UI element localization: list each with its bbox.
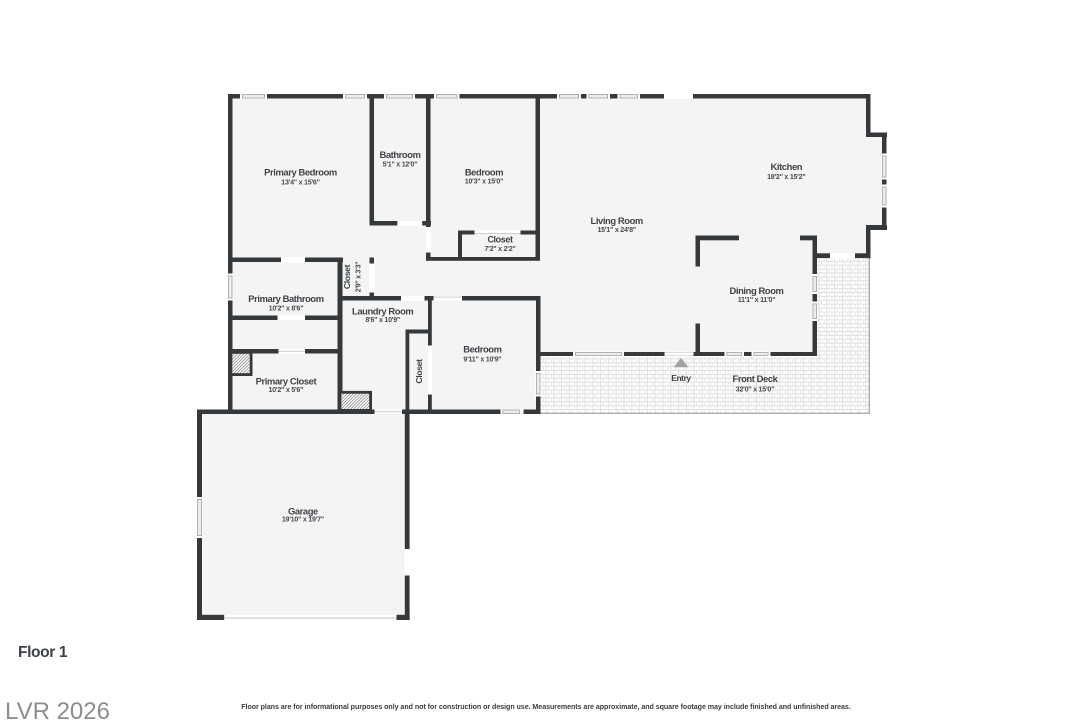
svg-text:Primary Bathroom: Primary Bathroom	[248, 293, 323, 304]
svg-text:18'2" x 15'2": 18'2" x 15'2"	[767, 173, 805, 181]
svg-text:2'9" x 3'3": 2'9" x 3'3"	[355, 262, 362, 293]
svg-text:8'6" x 10'9": 8'6" x 10'9"	[365, 316, 400, 324]
svg-text:15'1" x 24'8": 15'1" x 24'8"	[597, 226, 635, 234]
svg-text:Primary Closet: Primary Closet	[256, 375, 317, 386]
svg-text:Kitchen: Kitchen	[771, 161, 803, 172]
svg-text:Closet: Closet	[487, 235, 513, 245]
svg-text:Primary Bedroom: Primary Bedroom	[264, 167, 337, 178]
svg-text:Front Deck: Front Deck	[733, 373, 779, 384]
svg-text:Bedroom: Bedroom	[465, 166, 503, 177]
svg-text:Closet: Closet	[342, 264, 352, 289]
svg-text:Living Room: Living Room	[591, 215, 643, 226]
svg-text:Laundry Room: Laundry Room	[352, 305, 413, 316]
svg-text:10'2" x 8'6": 10'2" x 8'6"	[269, 304, 304, 312]
svg-text:32'0" x 15'0": 32'0" x 15'0"	[736, 385, 774, 393]
svg-text:Bedroom: Bedroom	[463, 343, 501, 354]
svg-text:7'2" x 2'2": 7'2" x 2'2"	[484, 245, 515, 253]
svg-text:Dining Room: Dining Room	[730, 285, 784, 296]
svg-text:Floor 1: Floor 1	[18, 644, 68, 661]
svg-text:Closet: Closet	[414, 359, 424, 384]
svg-text:10'2" x 5'6": 10'2" x 5'6"	[269, 386, 304, 394]
svg-text:Entry: Entry	[671, 373, 691, 383]
svg-text:LVR 2026: LVR 2026	[5, 698, 110, 724]
svg-text:10'3" x 15'0": 10'3" x 15'0"	[465, 177, 503, 185]
svg-text:5'1" x 12'0": 5'1" x 12'0"	[383, 161, 418, 169]
svg-text:Floor plans are for informatio: Floor plans are for informational purpos…	[241, 703, 851, 711]
svg-text:Garage: Garage	[288, 505, 318, 516]
svg-text:11'1" x 11'0": 11'1" x 11'0"	[738, 296, 776, 304]
svg-text:19'10" x 19'7": 19'10" x 19'7"	[282, 516, 324, 524]
svg-text:13'4" x 15'6": 13'4" x 15'6"	[281, 179, 319, 187]
svg-text:Bathroom: Bathroom	[379, 149, 420, 160]
svg-text:9'11" x 10'9": 9'11" x 10'9"	[463, 355, 501, 363]
